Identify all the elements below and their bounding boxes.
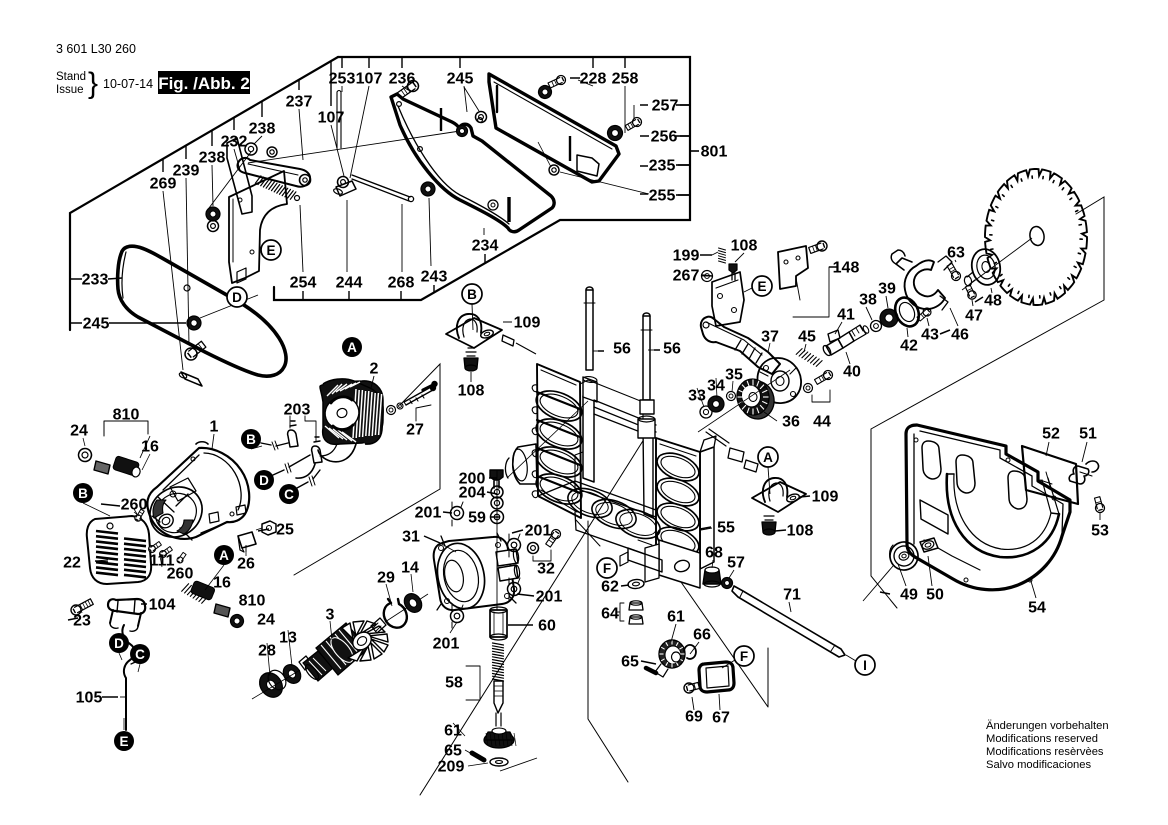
svg-text:107: 107 bbox=[356, 71, 383, 88]
svg-text:204: 204 bbox=[459, 485, 486, 502]
svg-text:40: 40 bbox=[843, 364, 861, 381]
svg-text:Issue: Issue bbox=[56, 84, 84, 96]
svg-text:236: 236 bbox=[389, 71, 416, 88]
svg-text:50: 50 bbox=[926, 587, 944, 604]
svg-text:43: 43 bbox=[921, 327, 939, 344]
svg-text:105: 105 bbox=[76, 690, 103, 707]
svg-text:260: 260 bbox=[167, 566, 194, 583]
svg-text:B: B bbox=[246, 432, 256, 447]
svg-text:}: } bbox=[88, 67, 98, 100]
svg-text:3: 3 bbox=[326, 607, 335, 624]
svg-text:32: 32 bbox=[537, 561, 555, 578]
svg-text:B: B bbox=[78, 486, 88, 501]
svg-text:26: 26 bbox=[237, 556, 255, 573]
svg-text:209: 209 bbox=[438, 759, 465, 776]
svg-text:108: 108 bbox=[731, 238, 758, 255]
svg-text:66: 66 bbox=[693, 627, 711, 644]
svg-text:63: 63 bbox=[947, 245, 965, 262]
svg-text:69: 69 bbox=[685, 709, 703, 726]
svg-text:35: 35 bbox=[725, 367, 743, 384]
svg-text:201: 201 bbox=[525, 523, 552, 540]
svg-text:268: 268 bbox=[388, 275, 415, 292]
svg-text:65: 65 bbox=[621, 654, 639, 671]
svg-text:13: 13 bbox=[279, 630, 297, 647]
svg-text:52: 52 bbox=[1042, 426, 1060, 443]
svg-text:Fig. /Abb. 2: Fig. /Abb. 2 bbox=[158, 74, 250, 93]
svg-text:29: 29 bbox=[377, 570, 395, 587]
svg-text:53: 53 bbox=[1091, 523, 1109, 540]
svg-text:42: 42 bbox=[900, 338, 918, 355]
svg-text:201: 201 bbox=[415, 505, 442, 522]
svg-text:65: 65 bbox=[444, 743, 462, 760]
svg-text:253: 253 bbox=[329, 71, 356, 88]
svg-text:28: 28 bbox=[258, 643, 276, 660]
svg-text:258: 258 bbox=[612, 71, 639, 88]
svg-text:104: 104 bbox=[149, 597, 176, 614]
svg-text:108: 108 bbox=[458, 383, 485, 400]
svg-text:107: 107 bbox=[318, 110, 345, 127]
svg-text:10-07-14: 10-07-14 bbox=[103, 77, 153, 91]
svg-text:64: 64 bbox=[601, 606, 619, 623]
svg-text:62: 62 bbox=[601, 579, 619, 596]
svg-text:24: 24 bbox=[70, 423, 88, 440]
svg-text:109: 109 bbox=[812, 489, 839, 506]
svg-text:239: 239 bbox=[173, 163, 200, 180]
svg-text:B: B bbox=[467, 287, 477, 302]
svg-text:27: 27 bbox=[406, 422, 424, 439]
svg-text:16: 16 bbox=[213, 575, 231, 592]
svg-text:37: 37 bbox=[761, 329, 779, 346]
svg-text:267: 267 bbox=[673, 268, 700, 285]
svg-text:58: 58 bbox=[445, 675, 463, 692]
svg-text:Änderungen vorbehalten: Änderungen vorbehalten bbox=[986, 720, 1109, 732]
svg-text:47: 47 bbox=[965, 308, 983, 325]
svg-text:810: 810 bbox=[239, 593, 266, 610]
svg-text:33: 33 bbox=[688, 388, 706, 405]
svg-text:25: 25 bbox=[276, 522, 294, 539]
svg-text:60: 60 bbox=[538, 618, 556, 635]
svg-text:810: 810 bbox=[113, 407, 140, 424]
svg-text:55: 55 bbox=[717, 520, 735, 537]
svg-text:E: E bbox=[119, 734, 128, 749]
svg-text:201: 201 bbox=[433, 636, 460, 653]
svg-text:Salvo modificaciones: Salvo modificaciones bbox=[986, 759, 1091, 771]
svg-text:C: C bbox=[135, 647, 145, 662]
svg-text:D: D bbox=[259, 473, 269, 488]
svg-text:E: E bbox=[757, 279, 766, 294]
svg-text:199: 199 bbox=[673, 248, 700, 265]
svg-text:68: 68 bbox=[705, 545, 723, 562]
svg-text:59: 59 bbox=[468, 510, 486, 527]
svg-text:56: 56 bbox=[613, 341, 631, 358]
svg-text:45: 45 bbox=[798, 329, 816, 346]
svg-text:203: 203 bbox=[284, 402, 311, 419]
svg-text:238: 238 bbox=[199, 150, 226, 167]
svg-text:Modifications resèrvèes: Modifications resèrvèes bbox=[986, 746, 1104, 758]
svg-text:Stand: Stand bbox=[56, 71, 86, 83]
svg-text:257: 257 bbox=[652, 98, 679, 115]
svg-text:16: 16 bbox=[141, 439, 159, 456]
svg-text:A: A bbox=[219, 548, 229, 563]
svg-text:71: 71 bbox=[783, 587, 801, 604]
svg-text:E: E bbox=[266, 243, 275, 258]
svg-text:2: 2 bbox=[370, 361, 379, 378]
svg-text:3 601 L30 260: 3 601 L30 260 bbox=[56, 42, 136, 56]
svg-text:44: 44 bbox=[813, 414, 831, 431]
svg-text:A: A bbox=[763, 450, 773, 465]
svg-text:D: D bbox=[114, 636, 124, 651]
svg-text:36: 36 bbox=[782, 414, 800, 431]
svg-text:67: 67 bbox=[712, 710, 730, 727]
svg-text:F: F bbox=[740, 649, 748, 664]
svg-text:24: 24 bbox=[257, 612, 275, 629]
svg-text:14: 14 bbox=[401, 560, 419, 577]
svg-text:232: 232 bbox=[221, 134, 248, 151]
svg-text:Modifications reserved: Modifications reserved bbox=[986, 733, 1098, 745]
svg-text:1: 1 bbox=[210, 419, 219, 436]
svg-text:61: 61 bbox=[667, 609, 685, 626]
svg-text:31: 31 bbox=[402, 529, 420, 546]
svg-text:233: 233 bbox=[82, 272, 109, 289]
svg-text:34: 34 bbox=[707, 378, 725, 395]
svg-text:C: C bbox=[284, 487, 294, 502]
svg-text:108: 108 bbox=[787, 523, 814, 540]
svg-text:269: 269 bbox=[150, 176, 177, 193]
svg-text:255: 255 bbox=[649, 188, 676, 205]
svg-text:245: 245 bbox=[447, 71, 474, 88]
svg-text:109: 109 bbox=[514, 315, 541, 332]
svg-text:57: 57 bbox=[727, 555, 745, 572]
svg-text:228: 228 bbox=[580, 71, 607, 88]
svg-text:A: A bbox=[347, 340, 357, 355]
svg-text:245: 245 bbox=[83, 316, 110, 333]
svg-text:D: D bbox=[232, 290, 242, 305]
svg-text:49: 49 bbox=[900, 587, 918, 604]
svg-text:237: 237 bbox=[286, 94, 313, 111]
svg-text:23: 23 bbox=[73, 613, 91, 630]
svg-text:234: 234 bbox=[472, 238, 499, 255]
svg-text:201: 201 bbox=[536, 589, 563, 606]
svg-text:I: I bbox=[863, 658, 867, 673]
svg-text:54: 54 bbox=[1028, 600, 1046, 617]
svg-text:48: 48 bbox=[984, 293, 1002, 310]
svg-text:41: 41 bbox=[837, 307, 855, 324]
svg-text:39: 39 bbox=[878, 281, 896, 298]
svg-text:244: 244 bbox=[336, 275, 363, 292]
svg-text:260: 260 bbox=[121, 497, 148, 514]
svg-text:238: 238 bbox=[249, 121, 276, 138]
svg-text:56: 56 bbox=[663, 341, 681, 358]
svg-text:254: 254 bbox=[290, 275, 317, 292]
svg-text:46: 46 bbox=[951, 327, 969, 344]
svg-text:22: 22 bbox=[63, 555, 81, 572]
svg-text:51: 51 bbox=[1079, 426, 1097, 443]
svg-text:243: 243 bbox=[421, 269, 448, 286]
svg-text:235: 235 bbox=[649, 158, 676, 175]
svg-text:61: 61 bbox=[444, 723, 462, 740]
svg-text:256: 256 bbox=[651, 129, 678, 146]
svg-text:38: 38 bbox=[859, 292, 877, 309]
svg-text:148: 148 bbox=[833, 260, 860, 277]
svg-text:801: 801 bbox=[701, 144, 728, 161]
svg-text:F: F bbox=[603, 561, 611, 576]
